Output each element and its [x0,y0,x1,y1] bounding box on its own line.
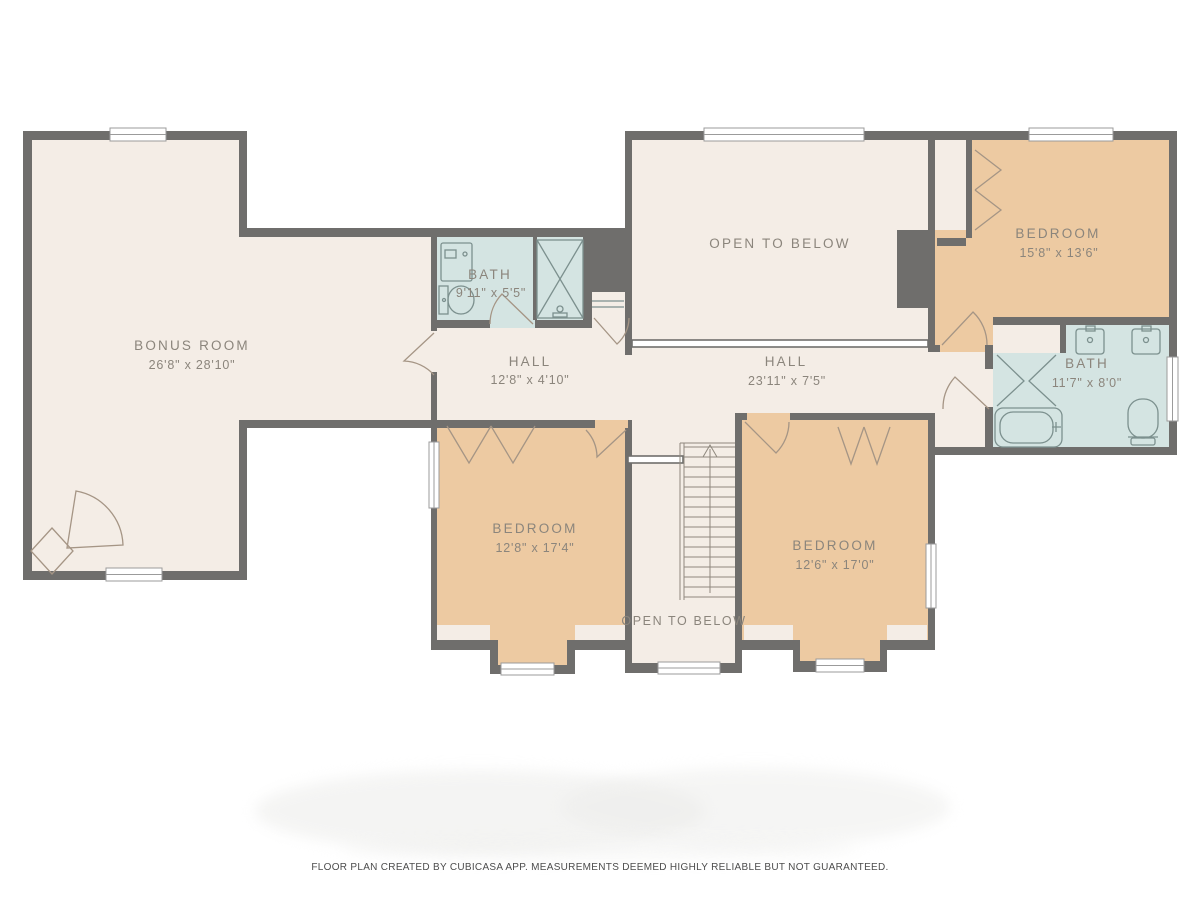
linen-closet-floor [590,292,625,328]
bonus-room-floor [23,131,247,580]
wall [437,320,490,328]
wall [937,238,966,246]
wall [23,131,32,580]
wall [431,372,437,428]
window [816,659,864,672]
wall [431,428,437,443]
window [658,662,720,674]
room-label: BEDROOM [492,521,577,536]
wall [239,131,247,237]
wall [742,413,747,420]
wall [937,131,1030,140]
bedroom-top-right-vestibule [930,230,993,352]
wall [737,640,800,650]
bedroom-right-bay [793,625,887,661]
wall [928,413,935,545]
room-label: HALL [765,354,808,369]
disclaimer-text: FLOOR PLAN CREATED BY CUBICASA APP. MEAS… [0,862,1200,873]
window [926,544,936,608]
room-dims: 15'8" x 13'6" [1020,246,1099,260]
wall [985,352,993,369]
wall [431,420,595,428]
wall [575,640,632,650]
window [429,442,439,508]
room-dims: 12'8" x 4'10" [491,373,570,387]
wall [966,140,972,238]
wall [985,447,1177,455]
hall-railing [632,340,928,347]
wall [719,663,735,673]
wall [790,413,935,420]
wall [985,345,993,352]
wall [553,665,575,674]
room-label: BEDROOM [792,538,877,553]
window [1167,357,1178,421]
wall [1060,325,1066,353]
window [110,128,166,141]
wall [583,237,632,292]
wall [928,447,993,455]
wall [431,640,490,650]
wall [880,640,935,650]
window [501,663,554,675]
corridor-floor [239,228,437,428]
stair-railing [628,456,683,463]
wall [993,317,1177,325]
wall [247,420,431,428]
wall [735,413,742,673]
room-label: OPEN TO BELOW [709,236,850,251]
room-dims: 9'11" x 5'5" [456,286,526,300]
window [704,128,864,141]
wall [239,420,247,580]
wall [625,428,632,673]
bath-right-closet-floor [993,325,1060,353]
wall [930,345,940,352]
room-label: BEDROOM [1015,226,1100,241]
floor-fills [23,131,1177,673]
wall [985,407,993,447]
wall [793,661,817,672]
wall [897,230,930,308]
room-dims: 11'7" x 8'0" [1052,376,1122,390]
room-label: OPEN TO BELOW [621,614,746,628]
room-label: BATH [468,267,512,282]
room-dims: 12'6" x 17'0" [796,558,875,572]
wall [1113,131,1177,140]
wall [863,131,937,140]
wall [863,661,887,672]
wall [625,131,705,140]
room-dims: 26'8" x 28'10" [149,358,236,372]
room-dims: 23'11" x 7'5" [748,374,826,388]
room-dims: 12'8" x 17'4" [496,541,575,555]
room-label: BATH [1065,356,1109,371]
wall [490,665,502,674]
bedroom-right-floor [737,413,935,640]
wall [431,228,632,237]
wall [431,508,437,650]
wall [1169,131,1177,360]
room-label: BONUS ROOM [134,338,250,353]
wall [247,228,431,237]
wall [632,663,660,673]
wall [628,420,632,428]
bedroom-left-bay [490,625,575,665]
floor-plan-svg: BONUS ROOM 26'8" x 28'10" BATH 9'11" x 5… [0,0,1200,900]
wall [431,228,437,331]
window [1029,128,1113,141]
room-label: HALL [509,354,552,369]
floor-plan-page: BONUS ROOM 26'8" x 28'10" BATH 9'11" x 5… [0,0,1200,900]
window [106,568,162,581]
wall [535,320,583,328]
